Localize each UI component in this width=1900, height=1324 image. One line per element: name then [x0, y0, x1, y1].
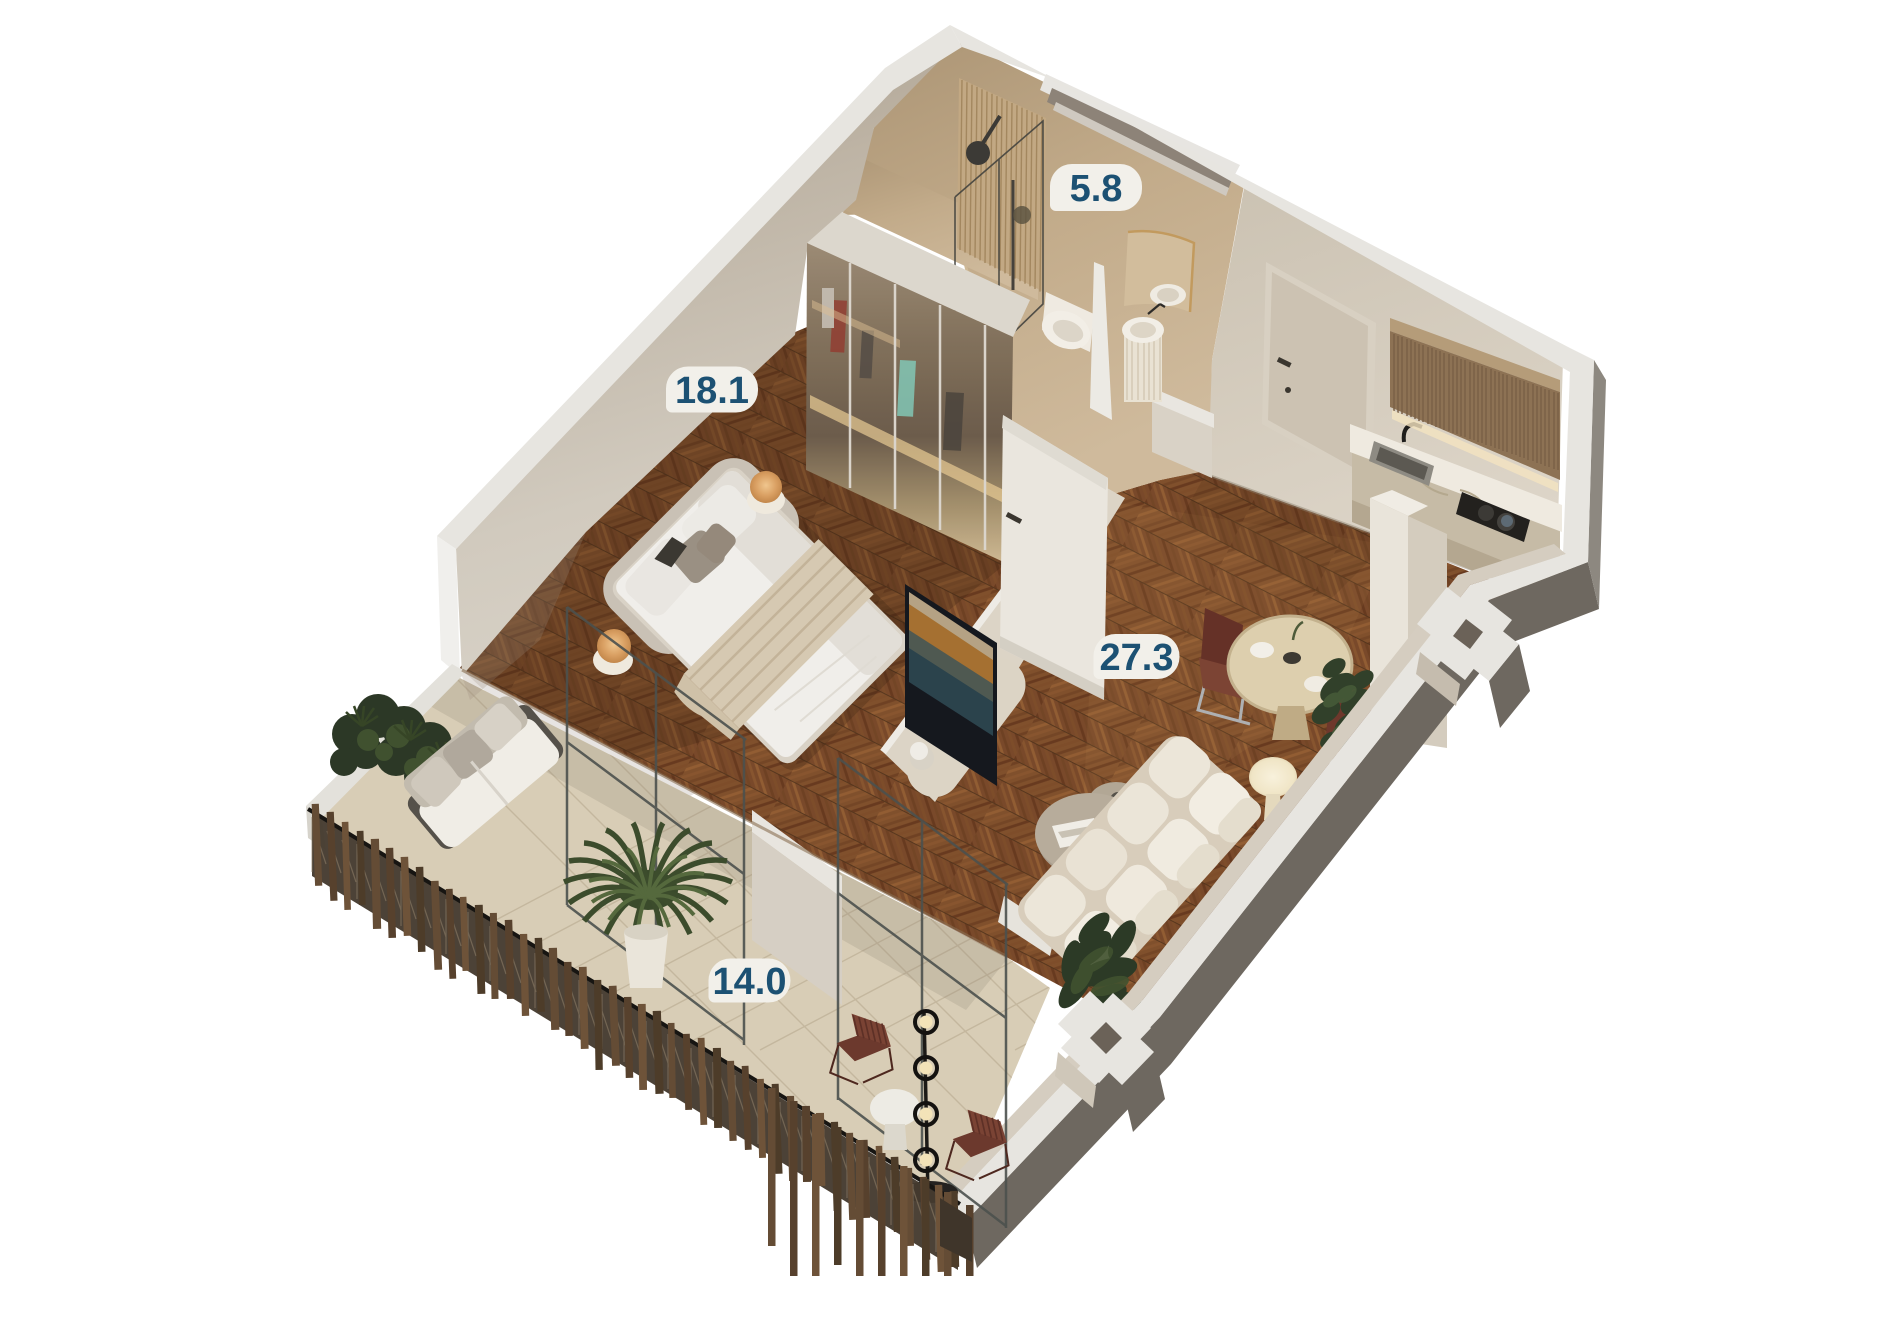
svg-text:5.8: 5.8	[1070, 168, 1123, 210]
svg-text:27.3: 27.3	[1100, 637, 1174, 679]
svg-text:18.1: 18.1	[675, 370, 749, 412]
svg-text:14.0: 14.0	[713, 961, 787, 1003]
